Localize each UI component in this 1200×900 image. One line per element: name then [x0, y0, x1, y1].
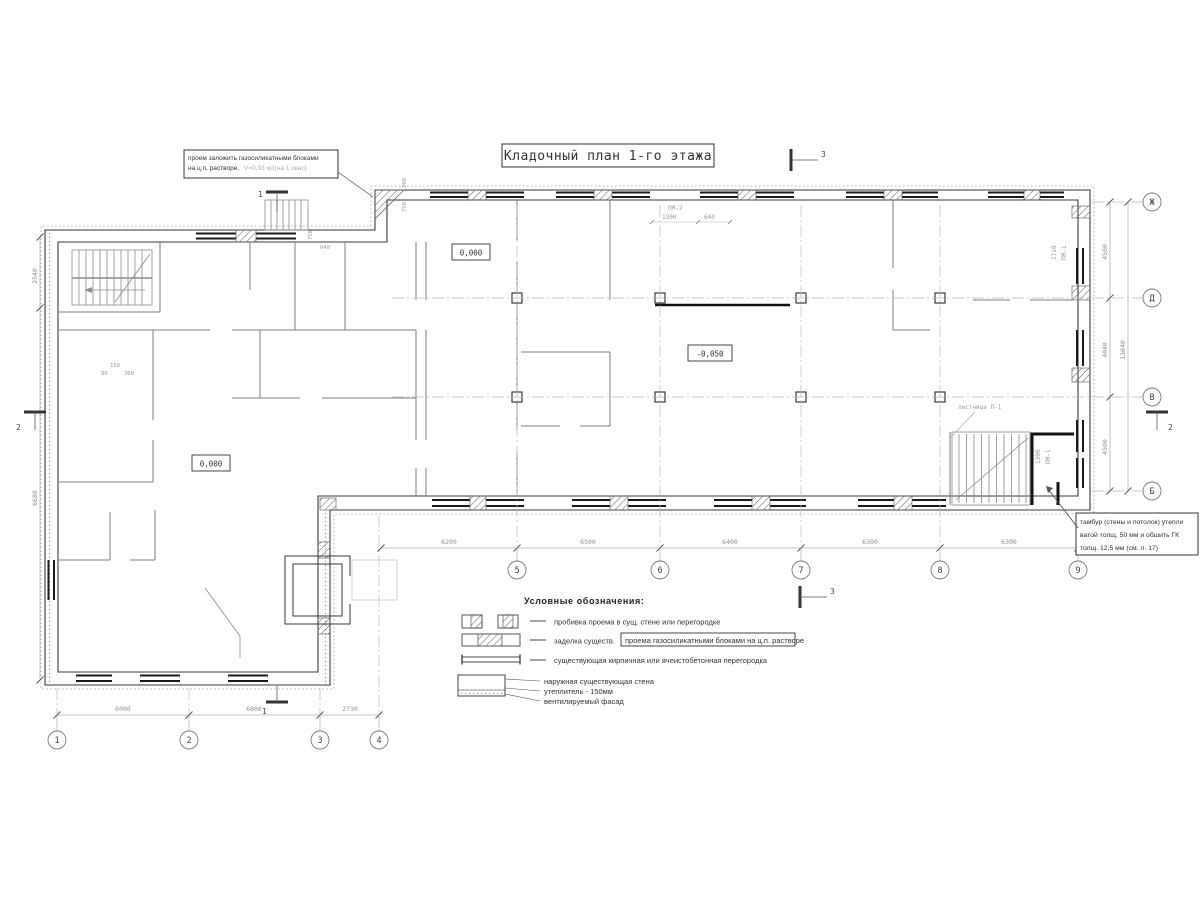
section-2-left: 2: [16, 412, 46, 432]
legend-item-2-plain: заделка существ.: [554, 637, 615, 646]
dim-13040: 13040: [1119, 340, 1127, 360]
section-1-bottom-label: 1: [262, 707, 267, 716]
section-3-top-label: 3: [821, 150, 826, 159]
axis-bubble-4: 4: [376, 736, 381, 746]
pm2-dim1: 1300: [662, 214, 677, 221]
dim-bottom-main: 6200 6500 6400 6300 6300 5 6 7 8 9: [378, 538, 1088, 579]
dim-4500-a: 4500: [1101, 244, 1109, 260]
section-marks: 3 3 1 1 2 2: [16, 149, 1173, 716]
elevation-wing-zero: 0,000: [200, 460, 223, 469]
note-tambour-line3: толщ. 12,5 мм (см. л. 17): [1080, 545, 1158, 552]
page-title: Кладочный план 1-го этажа: [504, 149, 712, 164]
dim-150: 150: [110, 363, 120, 369]
dim-6200: 6200: [441, 538, 457, 546]
section-3-bottom: 3: [800, 586, 835, 608]
dim-6800: 6800: [246, 705, 262, 713]
pm2-dim2: 640: [704, 214, 715, 221]
section-2-right: 2: [1146, 412, 1173, 432]
axis-bubble-b: Б: [1149, 487, 1154, 497]
legend-wall-2: утеплитель - 150мм: [544, 687, 613, 696]
stair-L1: [952, 432, 1030, 505]
dim-right-side: 4500 4040 4500 13040 Ж Д В Б: [1101, 193, 1161, 500]
section-3-bottom-label: 3: [830, 587, 835, 596]
exterior-walls: [45, 190, 1090, 685]
section-1-top-label: 1: [258, 190, 263, 199]
porch: [285, 556, 397, 624]
dim-2540: 2540: [31, 268, 39, 284]
note-tambour-arrow: [1046, 486, 1053, 493]
axis-bubble-8: 8: [937, 566, 942, 576]
legend-item-3: существующая кирпичная или ячеистобетонн…: [462, 655, 768, 666]
dim-2730: 2730: [342, 705, 358, 713]
partitions-left-wing: [58, 242, 416, 658]
tambour-walls: [1032, 434, 1074, 505]
section-2-right-label: 2: [1168, 423, 1173, 432]
dim-6680: 6680: [31, 490, 39, 506]
pm2-label: ПМ-2: [668, 205, 683, 212]
windows-left-wing: [49, 230, 331, 681]
pm1-bot-dim: 1300: [1035, 449, 1042, 464]
dim-6300-a: 6300: [862, 538, 878, 546]
axis-bubble-v: В: [1149, 393, 1154, 403]
section-3-top: 3: [791, 149, 826, 171]
axis-bubble-zh: Ж: [1149, 198, 1155, 208]
floor-plan-canvas: 6200 6500 6400 6300 6300 5 6 7 8 9: [0, 0, 1200, 900]
elevation-marks: 0,000 -0,050 0,000: [192, 244, 732, 471]
drawing-sheet: 6200 6500 6400 6300 6300 5 6 7 8 9: [0, 0, 1200, 900]
corner-hatch: [375, 190, 404, 219]
axis-bubble-3: 3: [317, 736, 322, 746]
dim-750-a: 750: [308, 230, 314, 240]
legend-item-3-label: существующая кирпичная или ячеистобетонн…: [554, 656, 768, 665]
note-opening-line2: на ц.п. растворе.: [188, 165, 239, 172]
axis-bubble-1: 1: [54, 736, 59, 746]
pm1-bot-label: ПМ-1: [1045, 449, 1052, 464]
dim-bottom-left: 6000 6800 2730 1 2 3 4: [48, 705, 388, 749]
windows-bottom-wall: [320, 496, 946, 510]
section-2-left-label: 2: [16, 423, 21, 432]
legend-item-2: заделка существ. проема газосиликатными …: [462, 633, 804, 646]
legend-wall-1: наружная существующая стена: [544, 677, 655, 686]
dim-750-b: 750: [402, 202, 408, 212]
dim-6000: 6000: [115, 705, 131, 713]
note-opening-line1: проем заложить газосиликатными блоками: [188, 154, 319, 162]
stair-label: лестница Л-1: [958, 404, 1002, 411]
elevation-hall-low: -0,050: [696, 350, 724, 359]
note-opening: проем заложить газосиликатными блоками н…: [184, 150, 373, 197]
window-piers-hatched: [468, 190, 1040, 200]
note-tambour-line2: ватой толщ. 50 мм и обшить ГК: [1080, 531, 1179, 539]
legend-item-1-label: пробивка проема в сущ. стене или перегор…: [554, 618, 720, 627]
axis-bubble-6: 6: [657, 566, 662, 576]
axis-bubble-7: 7: [798, 566, 803, 576]
dim-640: 640: [320, 245, 330, 251]
note-tambour-leader: [1048, 489, 1078, 528]
legend-item-2-boxed: проема газосиликатными блоками на ц.п. р…: [625, 636, 804, 645]
axis-bubble-5: 5: [514, 566, 519, 576]
dim-300: 300: [124, 371, 134, 377]
elevation-hall-zero: 0,000: [460, 249, 483, 258]
legend-title: Условные обозначения:: [524, 596, 644, 606]
stair-left-wing: [72, 250, 152, 305]
section-1-bottom: 1: [262, 686, 288, 716]
note-opening-leader: [338, 172, 373, 197]
axis-bubble-d: Д: [1149, 294, 1154, 304]
pm1-top-label: ПМ-1: [1061, 245, 1068, 260]
legend: Условные обозначения: пробивка проема в …: [458, 596, 804, 706]
note-tambour-line1: тамбур (стены и потолок) утепли: [1080, 518, 1184, 526]
dim-6500: 6500: [580, 538, 596, 546]
pm1-top-dim: 1710: [1051, 245, 1058, 260]
windows-top-wall: [430, 190, 1064, 200]
note-opening-line2-gray: V=0,93 м3(на 1 окно): [244, 165, 307, 172]
section-1-top: 1: [258, 190, 288, 212]
windows-right-wall: [1072, 206, 1090, 488]
legend-item-1: пробивка проема в сущ. стене или перегор…: [462, 615, 720, 628]
axis-bubble-9: 9: [1075, 566, 1080, 576]
small-callouts: лестница Л-1 ПМ-2 1300 640 1710 ПМ-1 130…: [308, 178, 1068, 464]
vent-facade-contour: [41, 186, 1094, 689]
title-block: Кладочный план 1-го этажа: [502, 144, 714, 167]
dim-4500-b: 4500: [1101, 439, 1109, 455]
dim-4040: 4040: [1101, 342, 1109, 358]
legend-wall-3: вентилируемый фасад: [544, 697, 624, 706]
dim-200: 200: [402, 178, 408, 188]
axis-bubble-2: 2: [186, 736, 191, 746]
legend-wall-detail: наружная существующая стена утеплитель -…: [458, 675, 655, 706]
dim-80: 80: [101, 371, 108, 377]
dim-6400: 6400: [722, 538, 738, 546]
dim-6300-b: 6300: [1001, 538, 1017, 546]
entrance-steps-top: [265, 200, 308, 230]
